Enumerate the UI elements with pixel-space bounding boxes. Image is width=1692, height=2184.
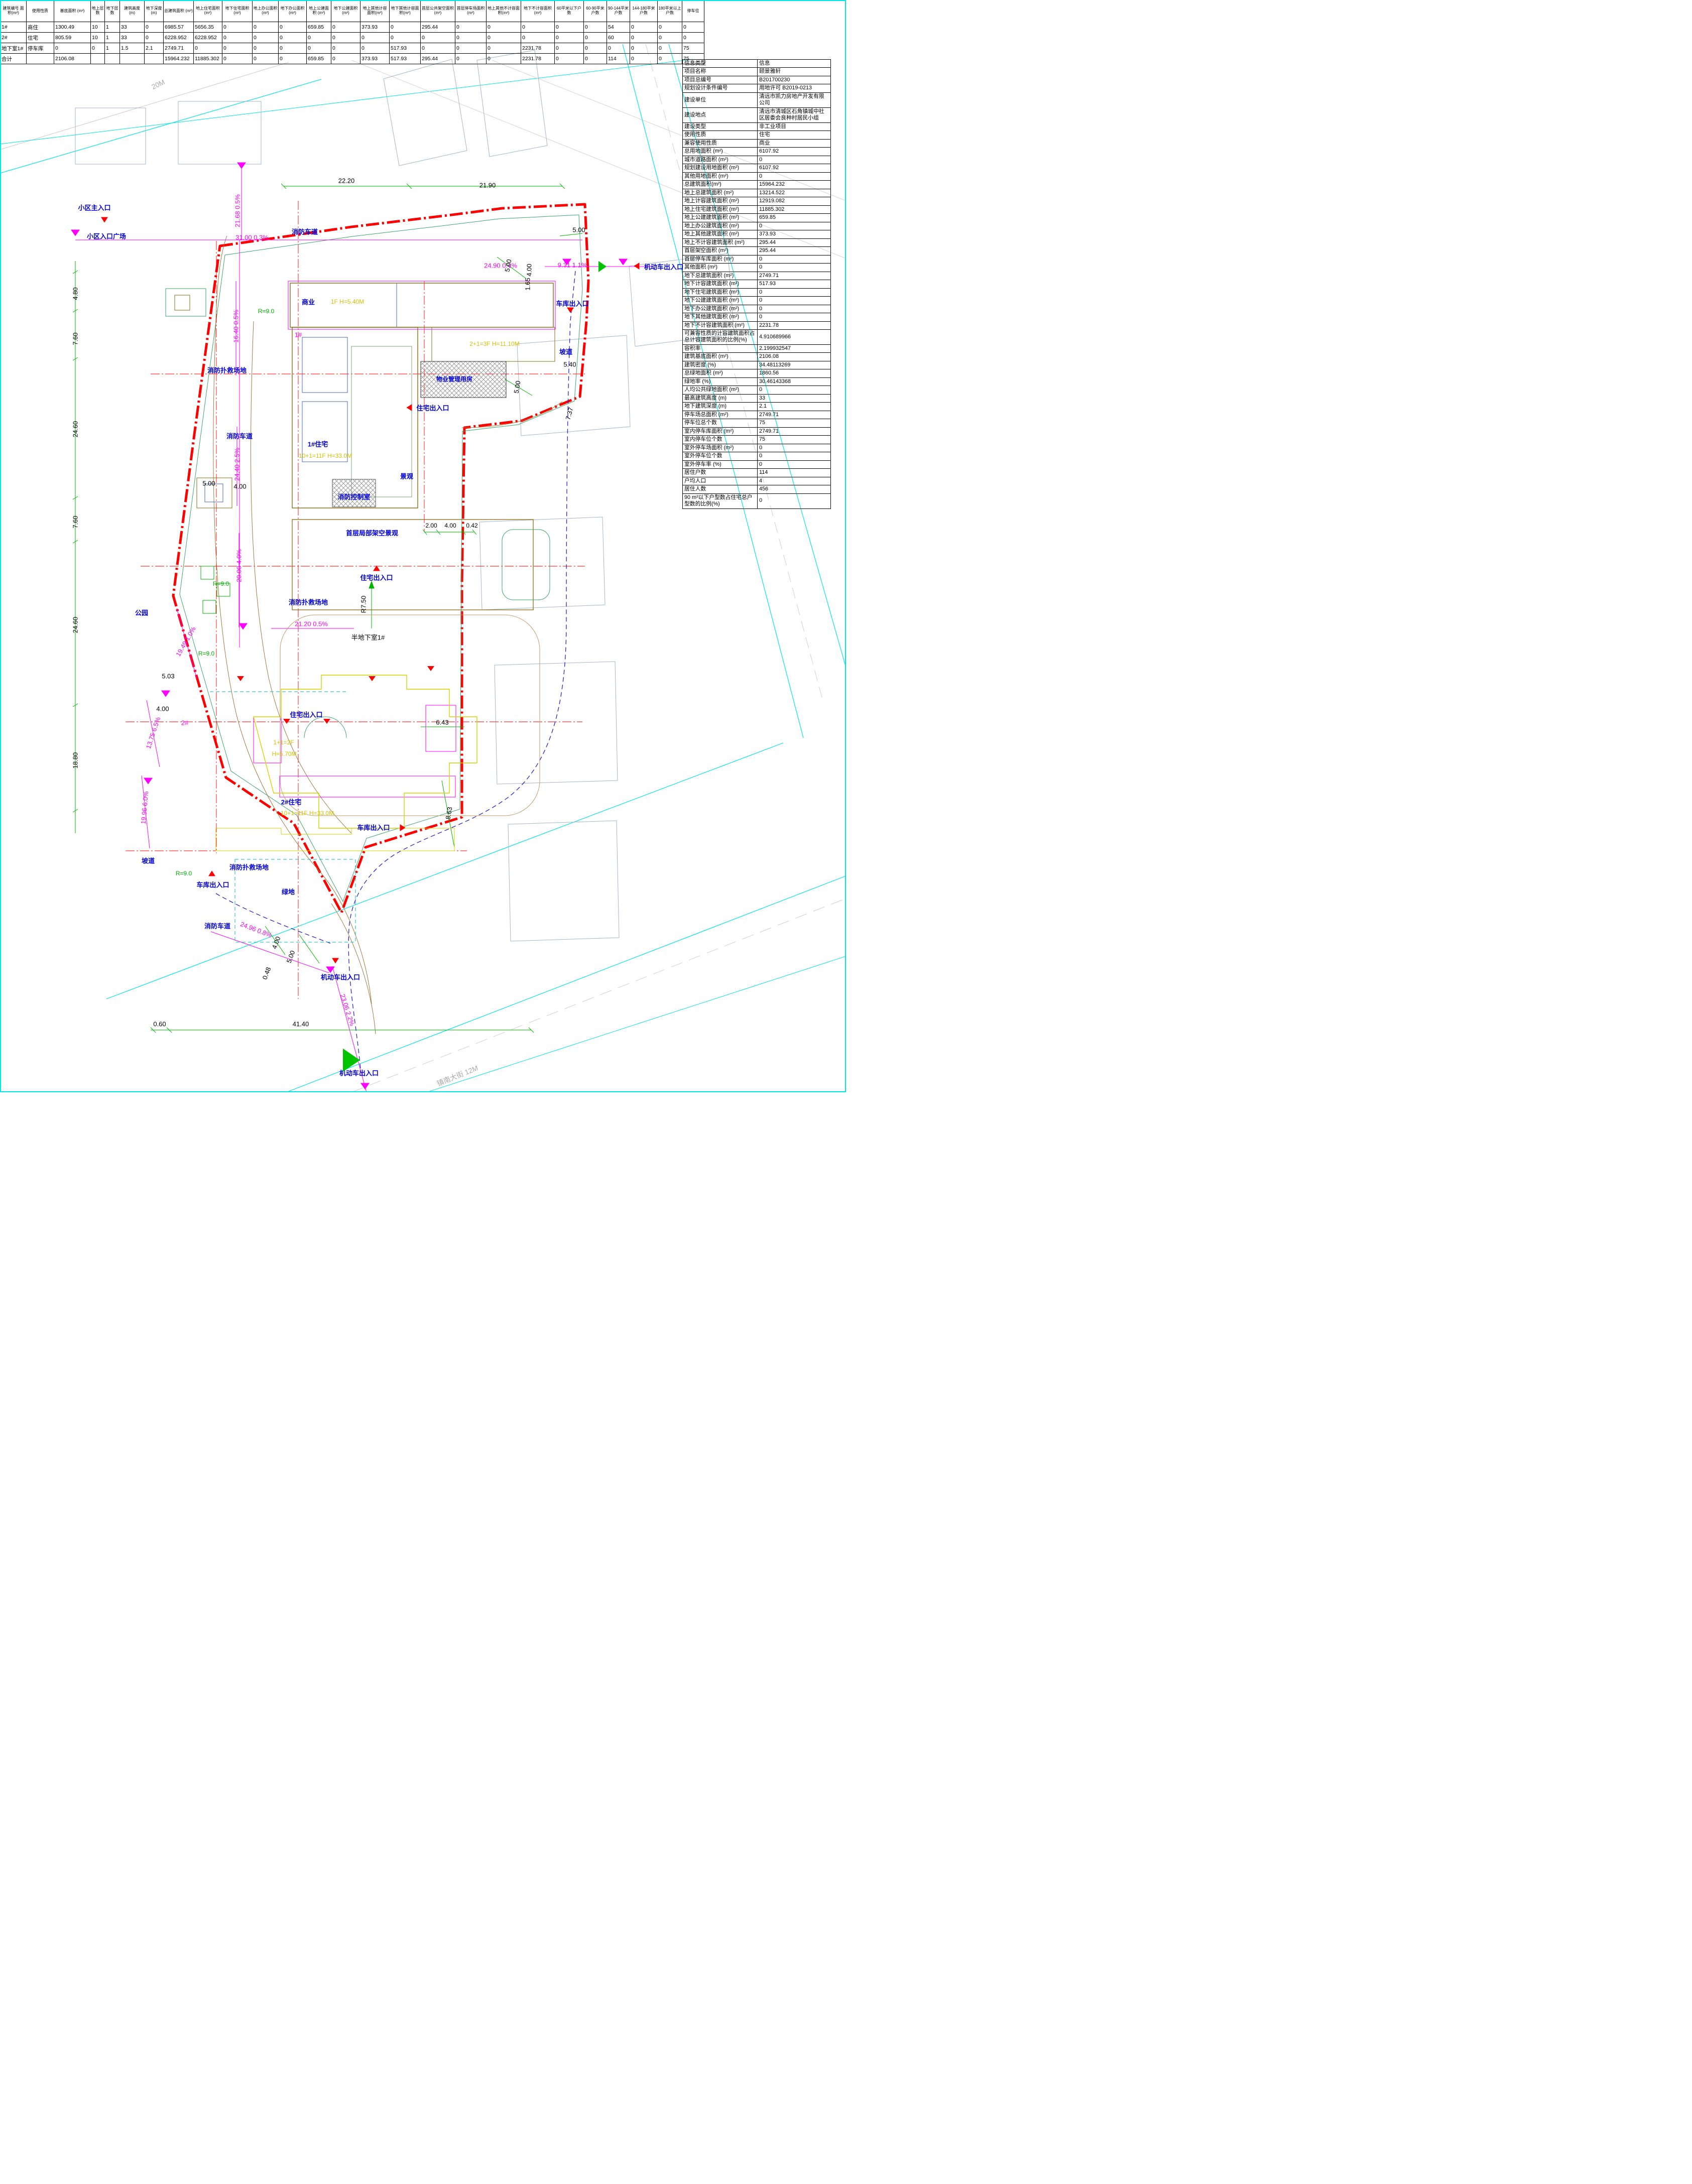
plan-label: 41.40 (293, 1020, 309, 1028)
info-value: 4 (758, 477, 831, 485)
info-label: 地下其他建筑面积 (m²) (683, 313, 758, 321)
table-cell: 114 (607, 54, 630, 64)
entrance-marker-icon (343, 1049, 360, 1072)
entrance-marker-icon (323, 719, 330, 724)
column-header: 地上其他不计容面积(m²) (487, 1, 521, 22)
table-cell: 住宅 (27, 33, 54, 43)
info-label: 地上公建建筑面积 (m²) (683, 214, 758, 222)
info-row: 地下其他建筑面积 (m²)0 (683, 313, 831, 321)
plan-label: 5.40 (563, 361, 576, 368)
plan-label: R=9.0 (198, 650, 214, 657)
plan-label: 1# (295, 331, 302, 339)
column-header: 首层停车场面积(m²) (455, 1, 487, 22)
plan-label: 5.00 (572, 226, 585, 234)
info-row: 绿地率 (%)30.46143368 (683, 377, 831, 386)
info-value: 2749.71 (758, 427, 831, 435)
table-cell: 0 (279, 54, 307, 64)
plan-label: 消防车道 (226, 431, 253, 441)
info-row: 建筑密度 (%)34.48113269 (683, 361, 831, 369)
table-cell: 2.1 (145, 43, 164, 54)
plan-label: 24.60 (72, 421, 79, 438)
plan-label: 10+1=11F H=33.0M (299, 452, 352, 459)
table-cell: 0 (331, 22, 360, 33)
table-cell: 0 (630, 33, 658, 43)
plan-label: 2.00 (425, 522, 437, 529)
plan-label: 车库出入口 (196, 880, 229, 889)
info-label: 居住户数 (683, 469, 758, 477)
info-row: 地上住宅建筑面积 (m²)11885.302 (683, 205, 831, 213)
column-header: 地下其他计容面积(m²) (390, 1, 421, 22)
info-label: 建设单位 (683, 92, 758, 107)
column-header: 90-144平米户数 (607, 1, 630, 22)
entrance-marker-icon (208, 871, 215, 876)
info-label: 绿地率 (%) (683, 377, 758, 386)
plan-label: 景观 (400, 471, 413, 481)
info-row: 城市道路面积 (m²)0 (683, 156, 831, 164)
table-cell: 0 (487, 33, 521, 43)
table-cell: 0 (253, 33, 279, 43)
info-row: 其他面积 (m²)0 (683, 264, 831, 272)
info-row: 地下计容建筑面积 (m²)517.93 (683, 280, 831, 288)
plan-label: R=9.0 (176, 870, 192, 877)
info-label: 项目名称 (683, 68, 758, 76)
info-label: 其他面积 (m²) (683, 264, 758, 272)
info-value: 6107.92 (758, 148, 831, 156)
plan-label: 物业管理用房 (436, 375, 472, 383)
info-label: 规划建设用地面积 (m²) (683, 164, 758, 172)
plan-label: 消防扑救场地 (207, 365, 247, 375)
entrance-marker-icon (360, 1083, 370, 1090)
table-cell: 0 (360, 33, 390, 43)
building-summary-table: 建筑编号 面积(m²)使用性质基底面积 (m²)地上层数地下层数建筑高度 (m)… (0, 0, 704, 64)
table-cell: 停车库 (27, 43, 54, 54)
table-cell: 6228.952 (194, 33, 222, 43)
info-label: 停车位总个数 (683, 419, 758, 427)
table-cell: 659.85 (307, 54, 331, 64)
info-label: 地上不计容建筑面积 (m²) (683, 238, 758, 246)
table-cell: 1 (105, 43, 120, 54)
plan-label: 20.00 4.0% (235, 549, 243, 582)
info-row: 建设单位清远市凯力房地产开发有限公司 (683, 92, 831, 107)
column-header: 停车位 (682, 1, 704, 22)
info-row: 地下总建筑面积 (m²)2749.71 (683, 272, 831, 280)
table-cell: 295.44 (421, 22, 455, 33)
table-cell: 11885.302 (194, 54, 222, 64)
info-value: 30.46143368 (758, 377, 831, 386)
column-header: 地上公建面积 (m²) (307, 1, 331, 22)
table-cell: 805.59 (54, 33, 91, 43)
entrance-marker-icon (634, 263, 640, 270)
info-row: 90 m²以下户型数占住宅总户型数的比例(%)0 (683, 493, 831, 508)
plan-label: 车库出入口 (357, 823, 390, 832)
info-value: 13214.522 (758, 189, 831, 197)
info-row: 室外停车场面积 (m²)0 (683, 444, 831, 452)
info-value: 2749.71 (758, 272, 831, 280)
table-cell: 0 (555, 22, 584, 33)
table-cell: 0 (360, 43, 390, 54)
table-row: 地下室1#停车库0011.52.12749.710000000517.93000… (1, 43, 704, 54)
entrance-marker-icon (237, 163, 246, 169)
info-value: 0 (758, 255, 831, 263)
info-value: 33 (758, 394, 831, 402)
info-row: 使用性质住宅 (683, 131, 831, 139)
info-value: 373.93 (758, 230, 831, 238)
project-info-table: 信息类型信息项目名称颐景雅轩项目总编号B201700230规划设计条件编号用地许… (682, 59, 831, 509)
info-label: 室外停车位个数 (683, 452, 758, 460)
column-header: 144-180平米户数 (630, 1, 658, 22)
entrance-marker-icon (101, 217, 108, 223)
entrance-marker-icon (369, 676, 376, 681)
table-cell: 10 (91, 33, 105, 43)
column-header: 使用性质 (27, 1, 54, 22)
table-cell: 0 (555, 54, 584, 64)
table-cell: 33 (120, 22, 145, 33)
table-cell: 0 (630, 43, 658, 54)
entrance-marker-icon (562, 259, 571, 266)
plan-label: 坡道 (142, 856, 155, 865)
entrance-marker-icon (238, 623, 248, 630)
info-value: 659.85 (758, 214, 831, 222)
info-value: 0 (758, 460, 831, 468)
info-value: 456 (758, 485, 831, 493)
table-cell: 0 (91, 43, 105, 54)
info-label: 室内停车库面积 (m²) (683, 427, 758, 435)
table-cell: 0 (555, 43, 584, 54)
info-value: 信息 (758, 60, 831, 68)
info-value: 0 (758, 156, 831, 164)
plan-label: 1+1=2F (273, 739, 294, 746)
column-header: 地下公建面积(m²) (331, 1, 360, 22)
info-value: 商业 (758, 139, 831, 147)
table-cell: 6228.952 (164, 33, 194, 43)
info-row: 可兼容性质的计容建筑面积占总计容建筑面积的比例(%)4.910689966 (683, 329, 831, 344)
plan-label: 坡道 (559, 347, 572, 356)
table-cell: 2106.08 (54, 54, 91, 64)
table-cell: 15964.232 (164, 54, 194, 64)
table-cell: 0 (145, 33, 164, 43)
table-cell: 0 (555, 33, 584, 43)
table-cell: 0 (658, 54, 682, 64)
table-cell: 0 (658, 33, 682, 43)
info-value: B201700230 (758, 76, 831, 84)
table-cell: 10 (91, 22, 105, 33)
column-header: 地上其他计容面积(m²) (360, 1, 390, 22)
info-row: 容积率2.199932547 (683, 344, 831, 352)
info-value: 517.93 (758, 280, 831, 288)
info-row: 项目名称颐景雅轩 (683, 68, 831, 76)
table-cell: 1300.49 (54, 22, 91, 33)
plan-label: 5.00 (202, 480, 215, 487)
column-header: 地上办公面积(m²) (253, 1, 279, 22)
table-cell: 0 (253, 22, 279, 33)
plan-label: R7.50 (360, 596, 368, 613)
garage-route-dashed (216, 271, 575, 1069)
plan-label: 21.90 (479, 182, 496, 189)
column-header: 180平米以上户数 (658, 1, 682, 22)
plan-label: 18.80 (72, 752, 79, 769)
info-row: 地下住宅建筑面积 (m²)0 (683, 288, 831, 296)
info-label: 90 m²以下户型数占住宅总户型数的比例(%) (683, 493, 758, 508)
info-row: 规划设计条件编号用地许可 B2019-0213 (683, 84, 831, 92)
table-cell: 0 (222, 54, 253, 64)
column-header: 地下层数 (105, 1, 120, 22)
info-row: 停车位总个数75 (683, 419, 831, 427)
table-cell: 33 (120, 33, 145, 43)
info-row: 室内停车库面积 (m²)2749.71 (683, 427, 831, 435)
plan-label: 住宅出入口 (416, 403, 449, 413)
info-value: 颐景雅轩 (758, 68, 831, 76)
neighbor-buildings (75, 50, 734, 941)
table-cell: 373.93 (360, 54, 390, 64)
info-label: 建设地点 (683, 107, 758, 122)
plan-label: 5.03 (162, 673, 174, 680)
info-label: 地下计容建筑面积 (m²) (683, 280, 758, 288)
plan-label: 消防控制室 (337, 492, 370, 501)
table-cell: 0 (584, 43, 607, 54)
table-cell: 0 (331, 33, 360, 43)
info-label: 地上其他建筑面积 (m²) (683, 230, 758, 238)
plan-label: 消防车道 (204, 921, 230, 931)
plan-label: 住宅出入口 (360, 573, 393, 582)
plan-label: 2# (181, 719, 188, 727)
info-value: 用地许可 B2019-0213 (758, 84, 831, 92)
info-row: 总用地面积 (m²)6107.92 (683, 148, 831, 156)
table-cell: 0 (658, 22, 682, 33)
info-label: 停车场总面积 (m²) (683, 411, 758, 419)
table-cell: 0 (222, 43, 253, 54)
table-cell: 0 (607, 43, 630, 54)
info-row: 地上公建建筑面积 (m²)659.85 (683, 214, 831, 222)
info-row: 居住人数456 (683, 485, 831, 493)
table-cell: 1 (105, 22, 120, 33)
entrance-marker-icon (332, 958, 339, 964)
info-value: 6107.92 (758, 164, 831, 172)
info-label: 室外停车率 (%) (683, 460, 758, 468)
plan-label: 车库出入口 (556, 299, 588, 308)
info-row: 规划建设用地面积 (m²)6107.92 (683, 164, 831, 172)
plan-label: 1.65 (524, 278, 532, 290)
info-label: 信息类型 (683, 60, 758, 68)
table-cell: 5656.35 (194, 22, 222, 33)
dimension-lines-green (73, 184, 582, 1033)
entrance-structures (166, 289, 232, 508)
table-cell: 0 (222, 33, 253, 43)
info-label: 项目总编号 (683, 76, 758, 84)
info-label: 兼容使用性质 (683, 139, 758, 147)
plan-label: 绿地 (282, 887, 295, 896)
info-label: 地上总建筑面积 (m²) (683, 189, 758, 197)
info-row: 首层架空面积 (m²)295.44 (683, 247, 831, 255)
table-cell: 地下室1# (1, 43, 27, 54)
plan-label: 半地下室1# (351, 632, 385, 642)
table-row: 2#住宅805.591013306228.9526228.95200000000… (1, 33, 704, 43)
entrance-marker-icon (373, 566, 380, 571)
plan-label: 7.60 (72, 332, 79, 345)
table-cell: 2231.78 (521, 43, 555, 54)
table-cell: 0 (307, 43, 331, 54)
info-label: 建设类型 (683, 122, 758, 131)
column-header: 地下办公面积 (m²) (279, 1, 307, 22)
info-value: 2749.71 (758, 411, 831, 419)
table-cell: 0 (455, 22, 487, 33)
info-value: 75 (758, 419, 831, 427)
info-label: 地下公建建筑面积 (m²) (683, 297, 758, 305)
table-cell: 0 (307, 33, 331, 43)
table-cell: 0 (584, 33, 607, 43)
plan-label: 消防扑救场地 (289, 597, 328, 607)
info-label: 总用地面积 (m²) (683, 148, 758, 156)
info-row: 室外停车率 (%)0 (683, 460, 831, 468)
table-cell (27, 54, 54, 64)
entrance-marker-icon (237, 676, 244, 681)
info-row: 兼容使用性质商业 (683, 139, 831, 147)
info-value: 0 (758, 313, 831, 321)
table-cell: 1# (1, 22, 27, 33)
table-cell: 0 (331, 54, 360, 64)
info-row: 总建筑面积(m²)15964.232 (683, 181, 831, 189)
info-value: 2.199932547 (758, 344, 831, 352)
info-label: 最高建筑高度 (m) (683, 394, 758, 402)
info-value: 114 (758, 469, 831, 477)
info-row: 户均人口4 (683, 477, 831, 485)
table-cell: 0 (331, 43, 360, 54)
info-label: 容积率 (683, 344, 758, 352)
column-header: 60-90平米户数 (584, 1, 607, 22)
column-header: 基底面积 (m²) (54, 1, 91, 22)
plan-label: 首层局部架空景观 (346, 528, 398, 538)
plan-label: 4.80 (72, 287, 79, 300)
info-row: 地下建筑深度 (m)2.1 (683, 403, 831, 411)
table-cell: 75 (682, 43, 704, 54)
plan-label: 公园 (135, 608, 148, 617)
info-label: 建筑密度 (%) (683, 361, 758, 369)
column-header: 建筑高度 (m) (120, 1, 145, 22)
table-cell: 0 (487, 54, 521, 64)
plan-label: 住宅出入口 (290, 710, 322, 719)
plan-label: 1F H=5.40M (331, 298, 364, 305)
entrance-marker-icon (427, 666, 434, 671)
table-cell: 0 (682, 33, 704, 43)
table-cell: 0 (455, 54, 487, 64)
info-value: 12919.082 (758, 197, 831, 205)
table-cell: 0 (279, 22, 307, 33)
info-row: 停车场总面积 (m²)2749.71 (683, 411, 831, 419)
table-cell: 0 (682, 22, 704, 33)
info-value: 4.910689966 (758, 329, 831, 344)
table-cell (105, 54, 120, 64)
info-label: 地上办公建筑面积 (m²) (683, 222, 758, 230)
plan-label: 31.00 0.3% (235, 234, 269, 241)
building-1-podium (290, 283, 555, 361)
table-cell: 0 (279, 33, 307, 43)
table-cell: 0 (455, 43, 487, 54)
table-cell: 0 (253, 43, 279, 54)
table-cell: 合计 (1, 54, 27, 64)
info-label: 使用性质 (683, 131, 758, 139)
info-row: 地下办公建筑面积 (m²)0 (683, 305, 831, 313)
table-cell: 0 (390, 22, 421, 33)
info-label: 城市道路面积 (m²) (683, 156, 758, 164)
plan-label: R=9.0 (213, 580, 229, 587)
info-row: 地上不计容建筑面积 (m²)295.44 (683, 238, 831, 246)
table-cell (91, 54, 105, 64)
column-header: 地下不计容面积(m²) (521, 1, 555, 22)
table-cell: 0 (487, 22, 521, 33)
entrance-marker-icon (407, 404, 412, 411)
plan-label: 消防扑救场地 (229, 862, 269, 872)
info-label: 人均公共绿地面积 (m²) (683, 386, 758, 394)
column-header: 总建筑面积 (m²) (164, 1, 194, 22)
entrance-marker-icon (144, 778, 153, 785)
plan-label: 16.40 0.5% (232, 310, 240, 343)
info-value: 34.48113269 (758, 361, 831, 369)
table-cell: 0 (54, 43, 91, 54)
table-cell (145, 54, 164, 64)
info-value: 0 (758, 264, 831, 272)
info-label: 地上住宅建筑面积 (m²) (683, 205, 758, 213)
column-header: 地上层数 (91, 1, 105, 22)
info-label: 地下住宅建筑面积 (m²) (683, 288, 758, 296)
table-row: 1#商住1300.491013306985.575656.35000659.85… (1, 22, 704, 33)
site-plan-sheet: 建筑编号 面积(m²)使用性质基底面积 (m²)地上层数地下层数建筑高度 (m)… (0, 0, 846, 1092)
info-row: 首层停车库面积 (m²)0 (683, 255, 831, 263)
plan-label: 小区主入口 (78, 203, 110, 212)
info-row: 最高建筑高度 (m)33 (683, 394, 831, 402)
plan-label: 4.00 (233, 483, 246, 490)
info-row: 室外停车位个数0 (683, 452, 831, 460)
table-cell: 517.93 (390, 43, 421, 54)
info-value: 75 (758, 436, 831, 444)
table-cell: 6985.57 (164, 22, 194, 33)
table-cell: 1 (105, 33, 120, 43)
table-cell: 0 (658, 43, 682, 54)
table-cell: 0 (253, 54, 279, 64)
plan-label: 22.20 (338, 177, 355, 185)
entrance-marker-icon (71, 230, 80, 236)
info-value: 0 (758, 288, 831, 296)
info-value: 1860.56 (758, 369, 831, 377)
info-label: 其他用地面积 (m²) (683, 172, 758, 180)
table-cell: 商住 (27, 22, 54, 33)
plan-label: 2#住宅 (281, 797, 301, 807)
entrance-marker-icon (619, 259, 628, 266)
plan-label: 4.00 (444, 522, 456, 529)
plan-label: 21.68 0.5% (234, 194, 241, 227)
info-row: 居住户数114 (683, 469, 831, 477)
entrance-marker-icon (326, 967, 335, 973)
info-value: 15964.232 (758, 181, 831, 189)
column-header: 首层公共架空面积(m²) (421, 1, 455, 22)
plan-label: 21.20 0.5% (295, 620, 328, 628)
table-cell: 659.85 (307, 22, 331, 33)
table-cell: 0 (194, 43, 222, 54)
info-label: 总建筑面积(m²) (683, 181, 758, 189)
table-cell (120, 54, 145, 64)
plan-label: 6.43 (436, 719, 448, 726)
entrance-marker-icon (283, 719, 290, 724)
table-cell: 0 (521, 22, 555, 33)
info-label: 建筑基底面积 (m²) (683, 353, 758, 361)
plan-label: 消防车道 (292, 227, 318, 236)
info-label: 地下建筑深度 (m) (683, 403, 758, 411)
info-label: 首层架空面积 (m²) (683, 247, 758, 255)
table-cell: 2231.78 (521, 54, 555, 64)
info-value: 295.44 (758, 238, 831, 246)
info-value: 0 (758, 386, 831, 394)
info-label: 地下不计容建筑面积 (m²) (683, 321, 758, 329)
info-row: 其他用地面积 (m²)0 (683, 172, 831, 180)
table-cell: 0 (390, 33, 421, 43)
